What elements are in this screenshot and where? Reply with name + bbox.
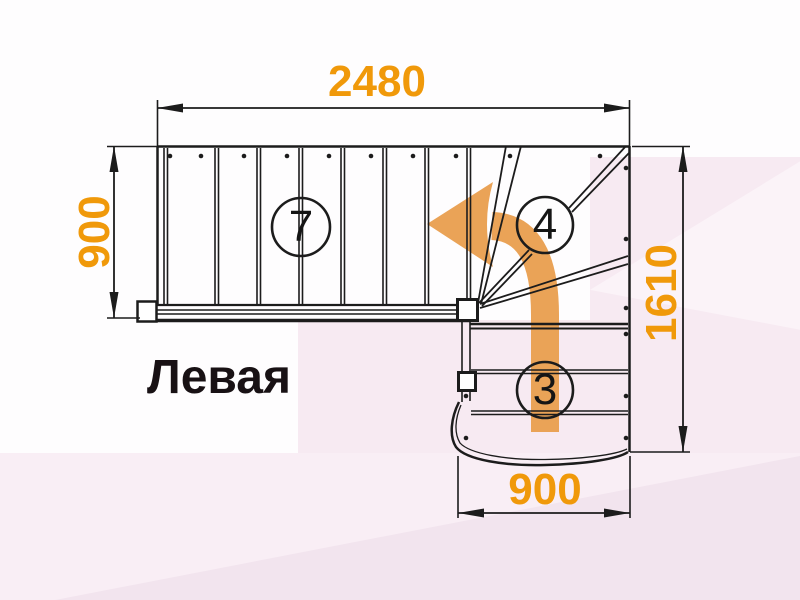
- upper-flight-step-count: 7: [271, 197, 331, 257]
- dimension-top-value: 2480: [292, 59, 462, 105]
- stair-variant-label: Левая: [119, 352, 319, 404]
- dimension-bottom-value: 900: [460, 467, 630, 513]
- dimension-right-value: 1610: [639, 208, 685, 378]
- lower-flight-step-count: 3: [515, 360, 575, 420]
- dimension-left-value: 900: [72, 147, 118, 317]
- dimension-top-2480: [157, 100, 630, 146]
- stair-plan-drawing: 2480 900 1610 900 Левая 7 4 3: [0, 0, 800, 600]
- winder-step-count: 4: [515, 195, 575, 255]
